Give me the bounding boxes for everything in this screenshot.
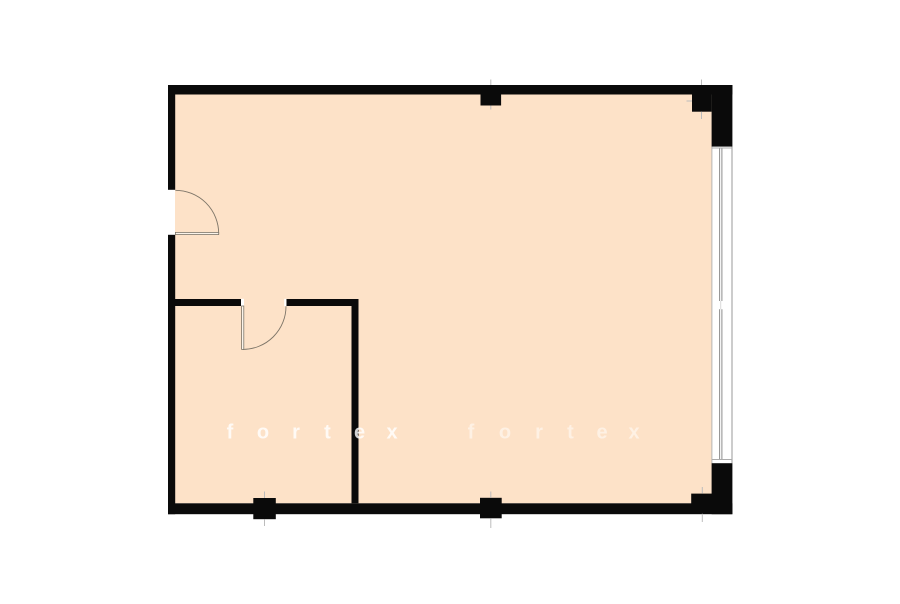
svg-text:t: t — [324, 422, 331, 444]
svg-text:t: t — [567, 422, 574, 444]
svg-text:r: r — [535, 422, 543, 444]
svg-text:e: e — [354, 422, 365, 444]
svg-text:f: f — [468, 422, 475, 444]
svg-text:x: x — [628, 422, 639, 444]
svg-text:o: o — [499, 422, 511, 444]
svg-text:o: o — [257, 422, 269, 444]
svg-text:x: x — [386, 422, 397, 444]
svg-text:e: e — [596, 422, 607, 444]
svg-text:r: r — [292, 422, 300, 444]
svg-text:f: f — [227, 422, 234, 444]
